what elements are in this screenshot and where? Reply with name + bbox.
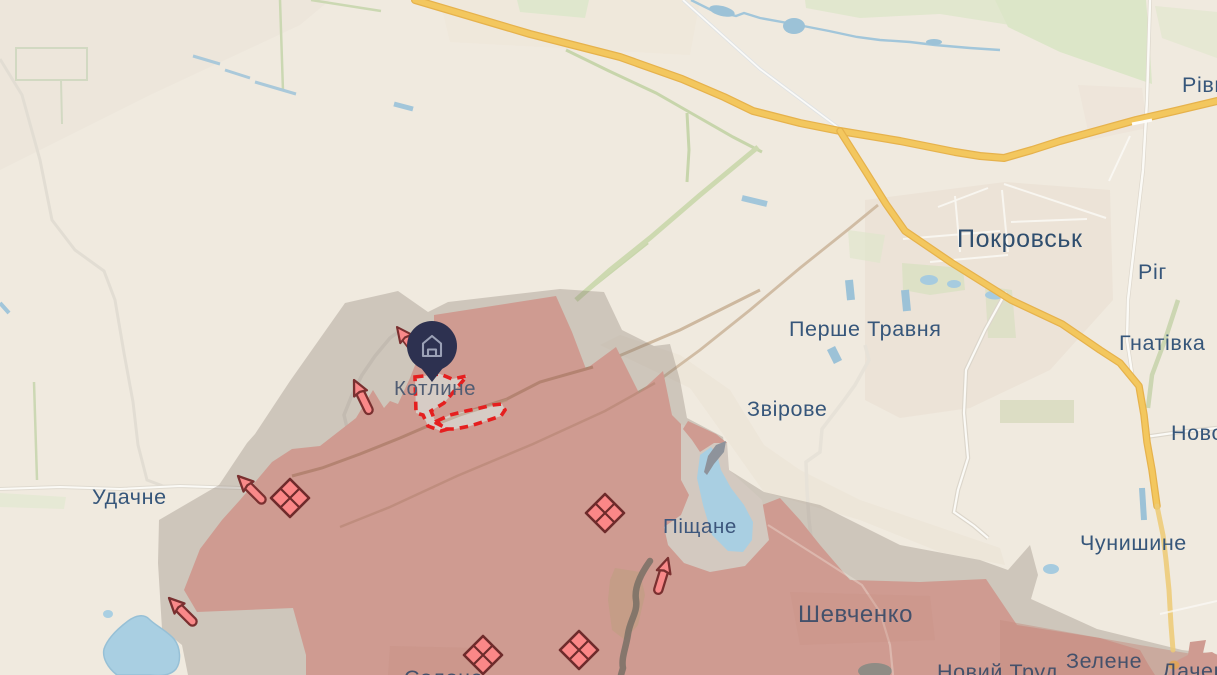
svg-text:Перше Травня: Перше Травня [789,317,942,341]
svg-text:Шевченко: Шевченко [798,601,913,628]
svg-text:Рівне: Рівне [1182,73,1217,97]
svg-text:Гнатівка: Гнатівка [1119,331,1205,355]
svg-text:Піщане: Піщане [663,515,737,538]
svg-text:Покровськ: Покровськ [957,225,1083,253]
svg-text:Удачне: Удачне [92,485,167,509]
svg-text:Звірове: Звірове [747,397,827,421]
svg-text:Зелене: Зелене [1066,649,1142,673]
svg-text:Ріг: Ріг [1138,260,1167,284]
svg-text:Даченське: Даченське [1162,659,1217,675]
svg-text:Чунишине: Чунишине [1080,531,1187,555]
svg-text:Котлине: Котлине [394,377,476,400]
svg-text:Новоселівка: Новоселівка [1171,421,1217,445]
svg-text:Новий Труд: Новий Труд [937,660,1058,675]
svg-text:Солоне: Солоне [404,666,483,675]
